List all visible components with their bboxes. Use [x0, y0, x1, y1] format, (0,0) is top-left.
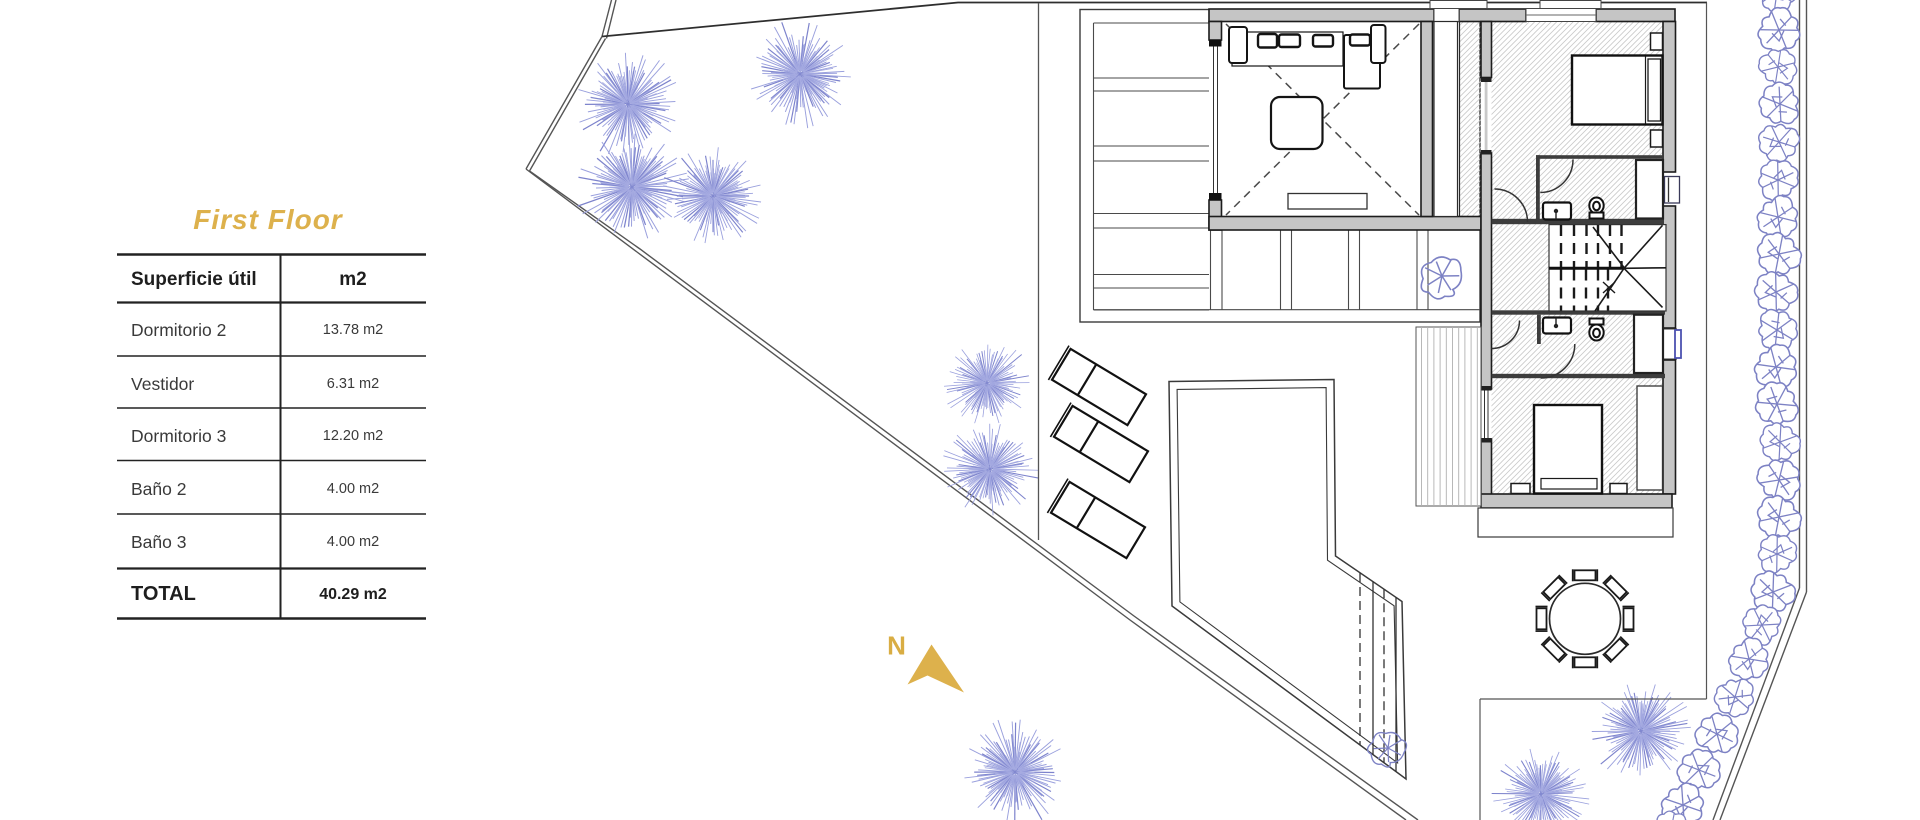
- svg-text:4.00 m2: 4.00 m2: [327, 534, 379, 550]
- svg-text:Baño 2: Baño 2: [131, 479, 186, 499]
- svg-text:m2: m2: [339, 269, 366, 290]
- svg-text:12.20 m2: 12.20 m2: [323, 428, 383, 444]
- svg-text:Vestidor: Vestidor: [131, 374, 194, 394]
- svg-text:6.31 m2: 6.31 m2: [327, 376, 379, 392]
- svg-text:First Floor: First Floor: [193, 204, 344, 235]
- svg-text:Dormitorio 3: Dormitorio 3: [131, 426, 226, 446]
- svg-text:Superficie útil: Superficie útil: [131, 269, 257, 290]
- svg-text:Baño 3: Baño 3: [131, 532, 186, 552]
- svg-text:13.78 m2: 13.78 m2: [323, 322, 383, 338]
- svg-text:TOTAL: TOTAL: [131, 583, 196, 605]
- svg-text:N: N: [887, 631, 906, 661]
- svg-text:4.00 m2: 4.00 m2: [327, 481, 379, 497]
- svg-text:Dormitorio 2: Dormitorio 2: [131, 320, 226, 340]
- svg-text:40.29 m2: 40.29 m2: [319, 586, 387, 603]
